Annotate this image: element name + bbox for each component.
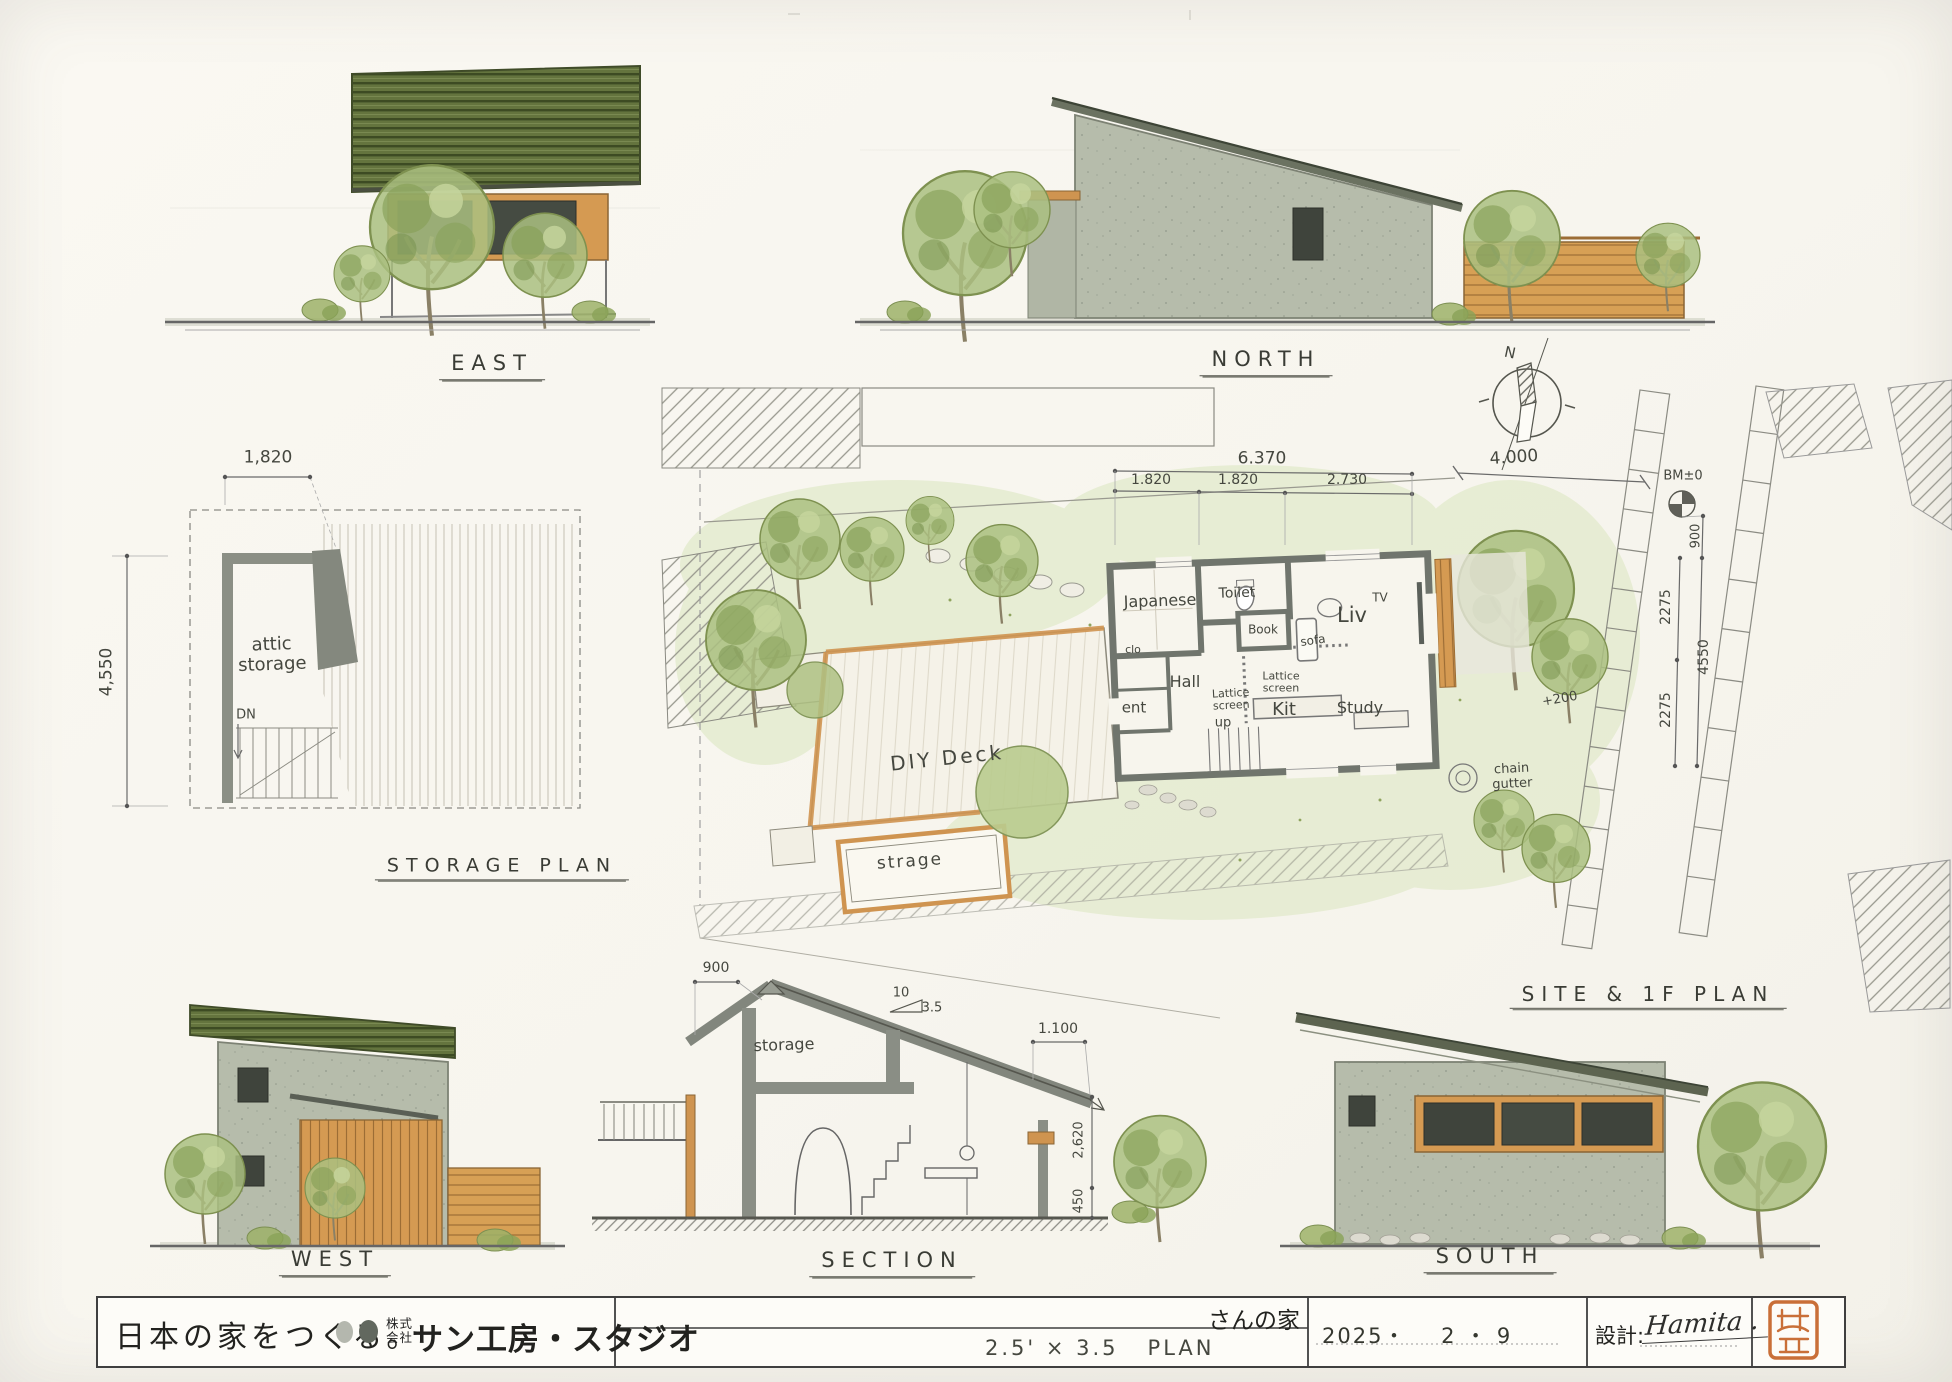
stair	[236, 728, 338, 798]
sofa-fixture	[1296, 618, 1318, 661]
wall-poche	[742, 1008, 756, 1094]
tree-icon	[976, 746, 1068, 838]
bush-icon	[572, 301, 616, 323]
bench	[925, 1168, 977, 1178]
logo-dot-light-icon	[336, 1321, 353, 1343]
bush-icon	[302, 299, 346, 321]
road-hatch	[1888, 380, 1952, 530]
company-prefix: 株式 会社	[386, 1317, 413, 1344]
pendant-light-icon	[960, 1146, 974, 1160]
terrace	[1446, 552, 1531, 675]
south-window	[1502, 1103, 1574, 1145]
railing	[600, 1102, 688, 1140]
wall	[222, 553, 314, 564]
north-window	[1293, 208, 1323, 260]
study-desk	[1354, 711, 1409, 729]
south-elevation	[1280, 1013, 1826, 1258]
deck-step	[770, 826, 815, 866]
section-drawing	[592, 980, 1206, 1242]
south-window	[1582, 1103, 1652, 1145]
company-prefix-top: 株式	[386, 1317, 413, 1331]
wall	[222, 553, 233, 803]
north-compass-icon	[1479, 338, 1575, 470]
sheet-artwork	[0, 0, 1952, 1382]
road-hatch	[1766, 384, 1872, 458]
neighbor-hatch	[662, 388, 860, 468]
ground-hatch	[592, 1218, 1108, 1231]
roof-hatch	[318, 524, 576, 806]
neighbor-building	[862, 388, 1214, 446]
wall-poche	[742, 1094, 756, 1218]
south-window	[1424, 1103, 1494, 1145]
tree-icon	[370, 165, 494, 336]
north-elevation	[855, 98, 1715, 342]
arch-door	[795, 1128, 851, 1215]
book-nook	[1238, 611, 1289, 649]
south-window	[1349, 1096, 1375, 1126]
dim-4550	[112, 554, 168, 808]
east-roof	[352, 66, 640, 192]
storage-plan-drawing	[112, 475, 580, 808]
company-prefix-bottom: 会社	[386, 1331, 413, 1345]
logo-dot-dark-icon	[359, 1320, 378, 1343]
west-elevation	[150, 1005, 565, 1251]
bush-icon	[887, 301, 931, 323]
east-elevation	[165, 66, 655, 336]
wood-beam	[1028, 1132, 1054, 1144]
exterior-wall	[1110, 554, 1436, 779]
west-window	[238, 1068, 268, 1102]
site-plan-drawing	[662, 380, 1952, 1018]
wood-post	[686, 1095, 695, 1218]
stair-profile	[862, 1125, 910, 1215]
kitchen-counter	[1253, 695, 1342, 719]
stone-wall	[1679, 386, 1784, 937]
tree-icon	[1522, 814, 1590, 908]
floor-poche	[742, 1082, 914, 1094]
road-hatch	[1848, 860, 1950, 1012]
tree-icon	[1698, 1082, 1826, 1258]
storage-shed	[838, 826, 1010, 912]
drawing-sheet: EAST NORTH STORAGE PLAN SITE & 1F PLAN W…	[0, 0, 1952, 1382]
dn-arrow	[234, 724, 242, 758]
benchmark-icon	[1669, 491, 1695, 517]
